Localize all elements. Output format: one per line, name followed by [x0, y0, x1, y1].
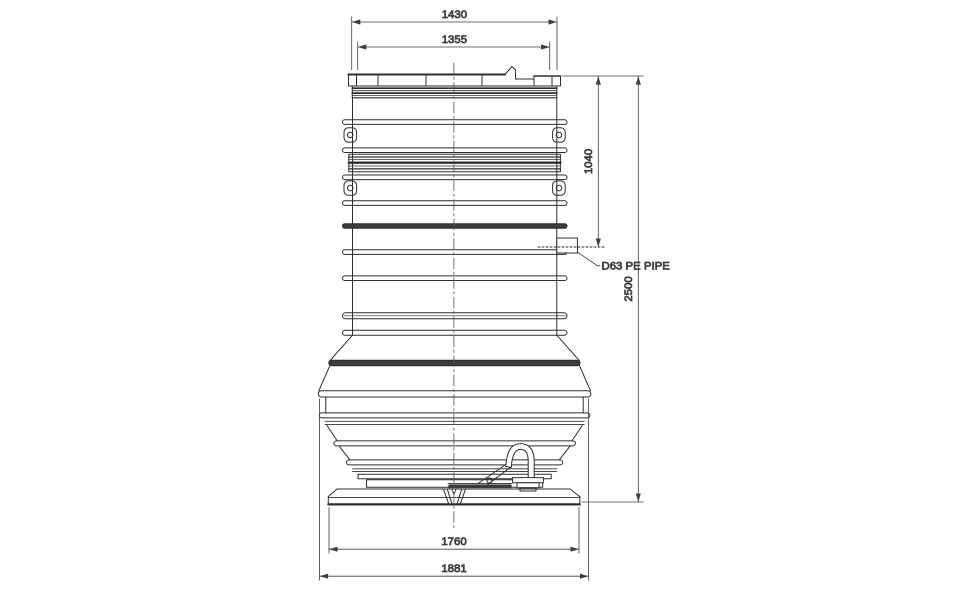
corrugated-band: [349, 154, 561, 172]
inlet-pipe-callout: D63 PE PIPE: [578, 253, 670, 273]
tank-outline: [318, 63, 606, 528]
drawing-canvas: 1430 1355 1040 2500 D63 PE PIPE: [0, 0, 976, 600]
dim-text-cover-inner: 1355: [442, 34, 467, 46]
lug-left-1: [344, 128, 357, 142]
dim-inlet-depth: 1040: [583, 76, 598, 247]
dimensioning: 1430 1355 1040 2500 D63 PE PIPE: [320, 9, 671, 580]
discharge-pipe-assembly: [448, 444, 543, 491]
dim-text-inlet-depth: 1040: [583, 149, 595, 174]
gooseneck-pipe: [506, 444, 534, 478]
inlet-pipe-stub: [538, 238, 606, 253]
lug-right-2: [553, 181, 566, 195]
leader-line: [578, 253, 600, 266]
dim-text-base-width: 1760: [441, 536, 466, 548]
access-cover: [349, 67, 561, 87]
max-diameter-ring: [318, 391, 591, 397]
lid-handle-bump: [505, 67, 516, 80]
gasket-stack: [352, 86, 557, 98]
center-sump: [444, 489, 466, 504]
shaft-ribs: [343, 224, 568, 336]
dim-overall-height: 2500: [582, 76, 644, 502]
technical-drawing-pump-station-elevation: 1430 1355 1040 2500 D63 PE PIPE: [0, 0, 976, 600]
lug-left-2: [344, 181, 357, 195]
shaft-walls: [353, 98, 557, 335]
dim-text-cover-outer: 1430: [442, 9, 467, 21]
inlet-pipe-label: D63 PE PIPE: [602, 260, 671, 272]
dim-text-max-diameter: 1881: [441, 563, 466, 575]
joint-ring-1: [343, 120, 568, 153]
joint-ring-2: [343, 175, 568, 205]
dim-text-overall-height: 2500: [623, 276, 635, 301]
bowl-section: [318, 335, 591, 487]
lug-right-1: [553, 128, 566, 142]
